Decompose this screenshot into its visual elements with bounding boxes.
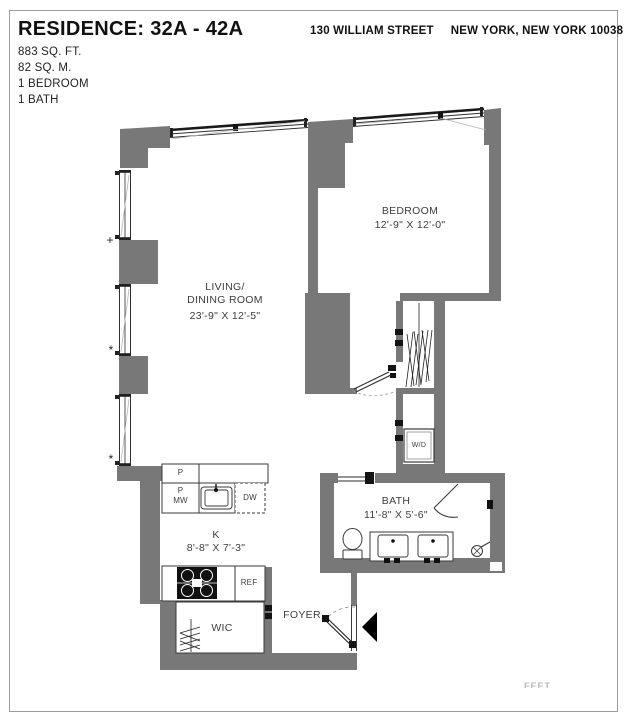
clipped-scale-text: FEET <box>524 681 604 688</box>
entry-arrow-icon <box>362 612 377 642</box>
living-room-dims: 23'-9" X 12'-5" <box>165 311 285 323</box>
window-star-symbol: * <box>104 343 118 357</box>
door-jamb-icon <box>395 329 403 441</box>
wic-door-hinge-icon <box>265 605 272 611</box>
refrigerator-label: REF <box>234 579 264 588</box>
left-facade-windows <box>115 170 132 466</box>
bath-dims: 11'-8" X 5'-6" <box>346 510 446 522</box>
window-star-symbol: * <box>104 452 118 466</box>
floor-plan: LIVING/ DINING ROOM 23'-9" X 12'-5" BEDR… <box>0 0 624 688</box>
bath-pocket-door-icon <box>338 472 374 484</box>
wic-label: WIC <box>196 623 248 635</box>
bedroom-door-icon <box>353 365 396 396</box>
bath-label: BATH <box>346 496 446 508</box>
range-icon <box>177 567 217 599</box>
window-icon <box>353 107 486 130</box>
washer-dryer-label: W/D <box>404 442 434 450</box>
window-plus-symbol: + <box>103 233 117 247</box>
foyer-label: FOYER <box>272 610 332 622</box>
kitchen-dims: 8'-8" X 7'-3" <box>172 543 260 555</box>
sink-icon <box>418 535 448 557</box>
window-icon <box>115 170 132 240</box>
bath-wall-fixture-icon <box>487 500 493 509</box>
shower-head-icon <box>472 542 491 557</box>
bedroom-label: BEDROOM <box>350 206 470 218</box>
bedroom-dims: 12'-9" X 12'-0" <box>350 220 470 232</box>
bedroom-closet <box>406 303 432 387</box>
floor-plan-drawing <box>0 0 624 688</box>
living-room-label: LIVING/ <box>165 282 285 294</box>
toilet-icon <box>343 529 362 560</box>
microwave-label: MW <box>163 497 198 506</box>
bath-wall-notch <box>490 562 502 571</box>
kitchen-sink-icon <box>201 484 232 509</box>
window-icon <box>170 118 308 139</box>
dishwasher-label: DW <box>236 494 264 503</box>
living-room-label-2: DINING ROOM <box>165 295 285 307</box>
pantry-mw-label: P <box>163 487 198 496</box>
vanity-icon <box>370 532 453 563</box>
wic-door-hinge-icon <box>265 613 272 619</box>
sink-icon <box>378 535 408 557</box>
kitchen-label: K <box>188 530 244 542</box>
pantry-label: P <box>163 469 198 478</box>
